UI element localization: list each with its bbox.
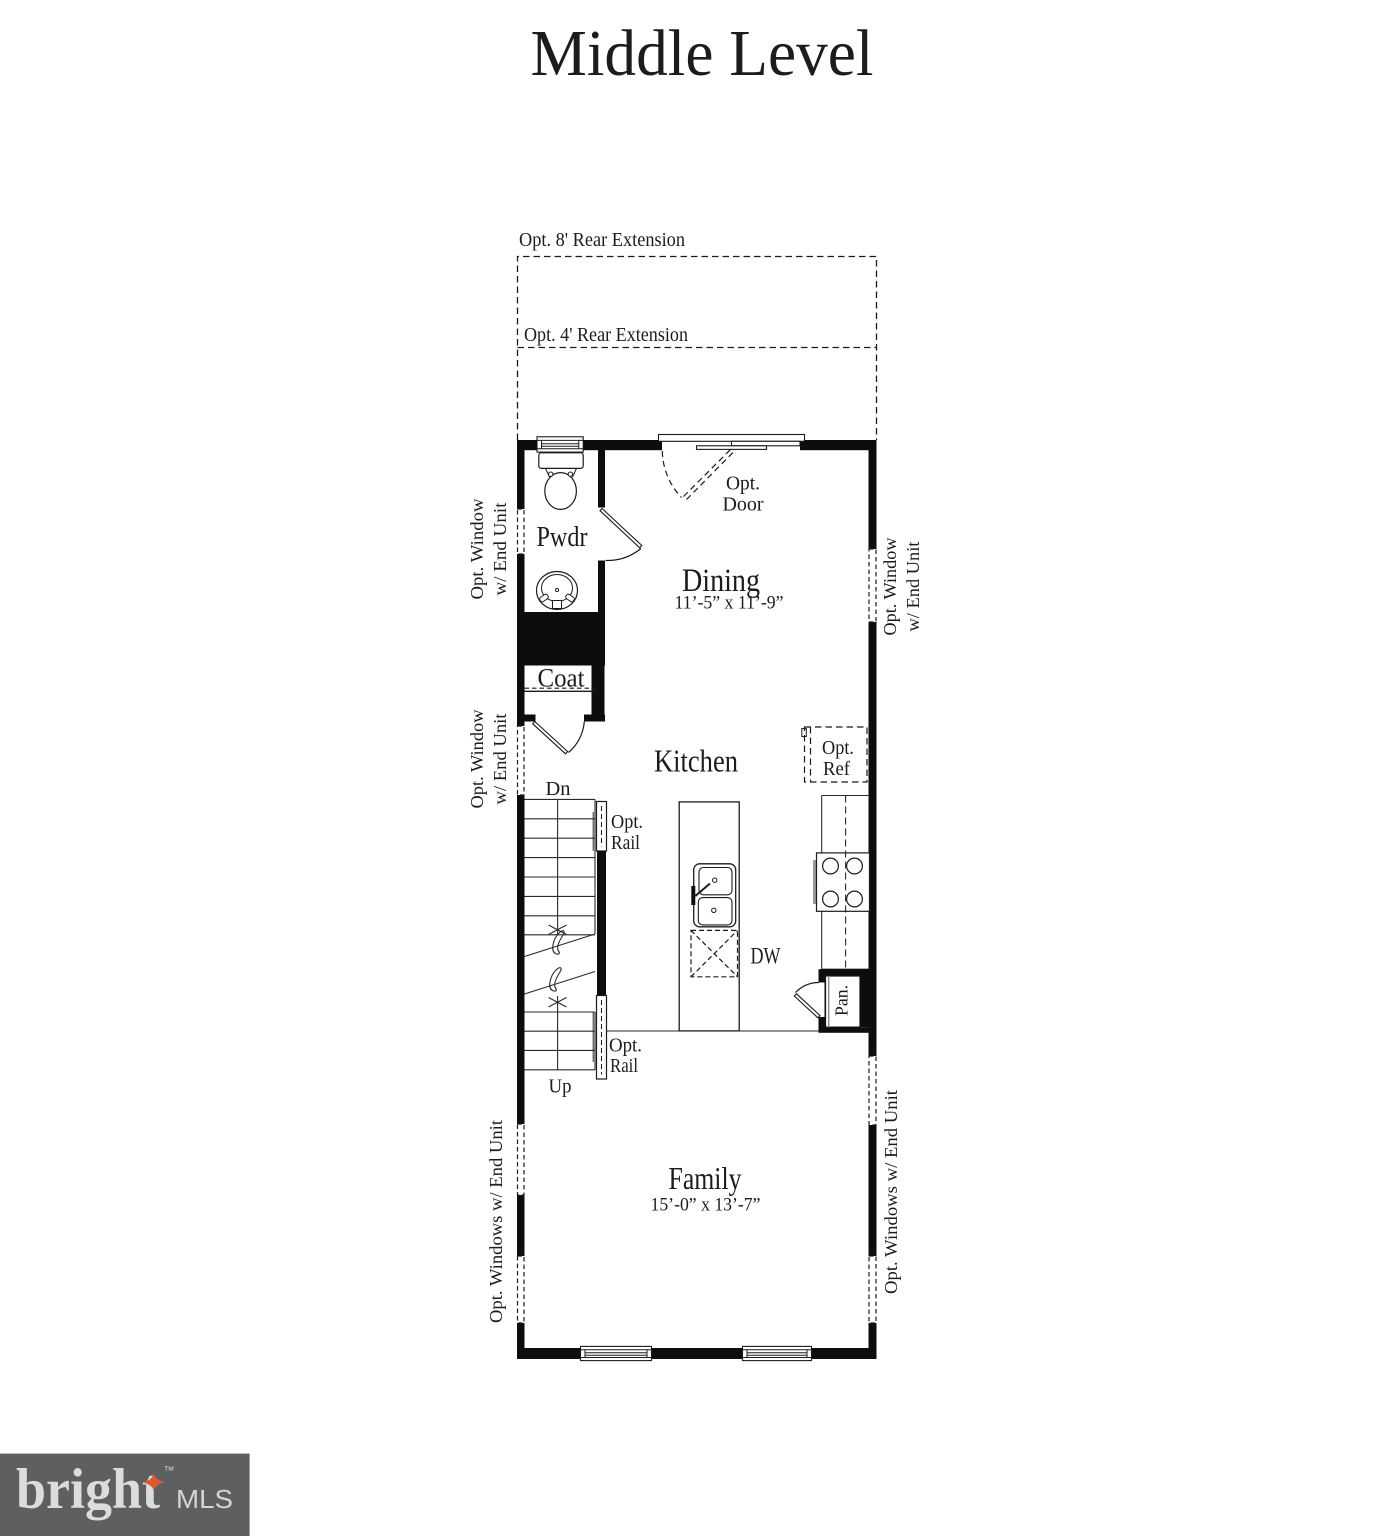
- svg-text:Door: Door: [723, 494, 764, 516]
- svg-text:w/ End Unit: w/ End Unit: [903, 541, 923, 631]
- svg-text:Opt.: Opt.: [609, 1035, 642, 1057]
- svg-text:Pan.: Pan.: [832, 985, 852, 1016]
- svg-text:™: ™: [164, 1465, 175, 1477]
- svg-text:Opt.: Opt.: [726, 473, 760, 495]
- svg-text:Middle Level: Middle Level: [531, 17, 874, 90]
- svg-text:Ref: Ref: [823, 758, 850, 780]
- svg-text:Opt. Window: Opt. Window: [467, 498, 487, 599]
- svg-text:w/ End Unit: w/ End Unit: [490, 502, 510, 595]
- svg-text:Family: Family: [669, 1160, 742, 1196]
- svg-text:Up: Up: [549, 1076, 572, 1098]
- svg-text:Opt. Windows w/ End Unit: Opt. Windows w/ End Unit: [881, 1090, 901, 1294]
- svg-text:MLS: MLS: [176, 1484, 233, 1514]
- svg-text:Coat: Coat: [538, 664, 586, 693]
- svg-text:Dn: Dn: [546, 778, 571, 800]
- svg-text:Rail: Rail: [611, 832, 640, 854]
- svg-text:Opt.: Opt.: [822, 737, 854, 759]
- svg-text:Opt.: Opt.: [611, 811, 643, 833]
- svg-text:Pwdr: Pwdr: [537, 522, 589, 553]
- svg-text:bright: bright: [16, 1458, 160, 1521]
- svg-text:Rail: Rail: [610, 1055, 638, 1077]
- svg-text:DW: DW: [751, 944, 781, 969]
- svg-text:Opt. Window: Opt. Window: [467, 709, 487, 808]
- svg-text:15’-0” x 13’-7”: 15’-0” x 13’-7”: [651, 1196, 761, 1216]
- svg-text:Opt. 8' Rear Extension: Opt. 8' Rear Extension: [519, 229, 685, 251]
- svg-text:Kitchen: Kitchen: [654, 743, 738, 779]
- svg-text:Opt. Window: Opt. Window: [880, 537, 900, 635]
- svg-text:Opt. Windows w/ End Unit: Opt. Windows w/ End Unit: [486, 1120, 506, 1323]
- svg-text:Opt. 4' Rear Extension: Opt. 4' Rear Extension: [524, 324, 688, 346]
- svg-text:w/ End Unit: w/ End Unit: [490, 713, 510, 804]
- svg-text:11’-5” x 11’-9”: 11’-5” x 11’-9”: [675, 594, 784, 614]
